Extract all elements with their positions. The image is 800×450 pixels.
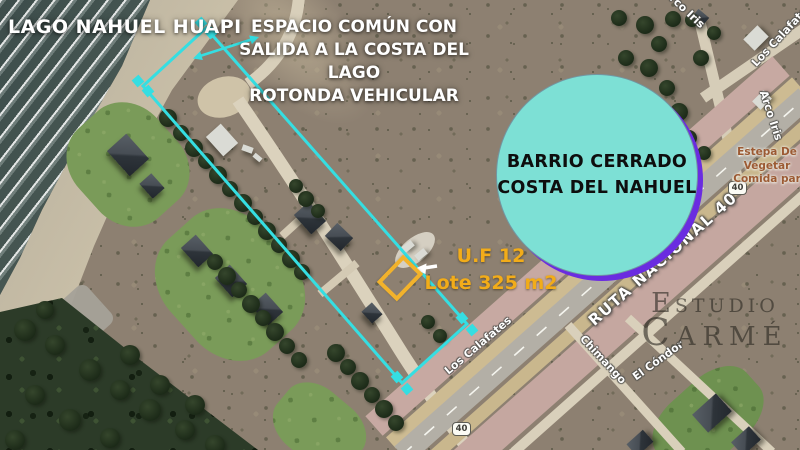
badge-line: COSTA DEL NAHUEL <box>497 175 696 201</box>
project-badge: BARRIO CERRADO COSTA DEL NAHUEL <box>496 74 698 276</box>
listing-image: Los Calafates Chimango El Cóndor Arco Ir… <box>0 0 800 450</box>
common-space-line: ESPACIO COMÚN CON <box>212 16 496 39</box>
lot-line: Lote 325 m2 <box>423 270 559 297</box>
badge-line: BARRIO CERRADO <box>507 149 687 175</box>
lake-label: LAGO NAHUEL HUAPI <box>8 16 242 38</box>
common-space-note: ESPACIO COMÚN CON SALIDA A LA COSTA DEL … <box>212 16 496 108</box>
common-space-line: ROTONDA VEHICULAR <box>212 85 496 108</box>
common-space-line: SALIDA A LA COSTA DEL LAGO <box>212 39 496 85</box>
